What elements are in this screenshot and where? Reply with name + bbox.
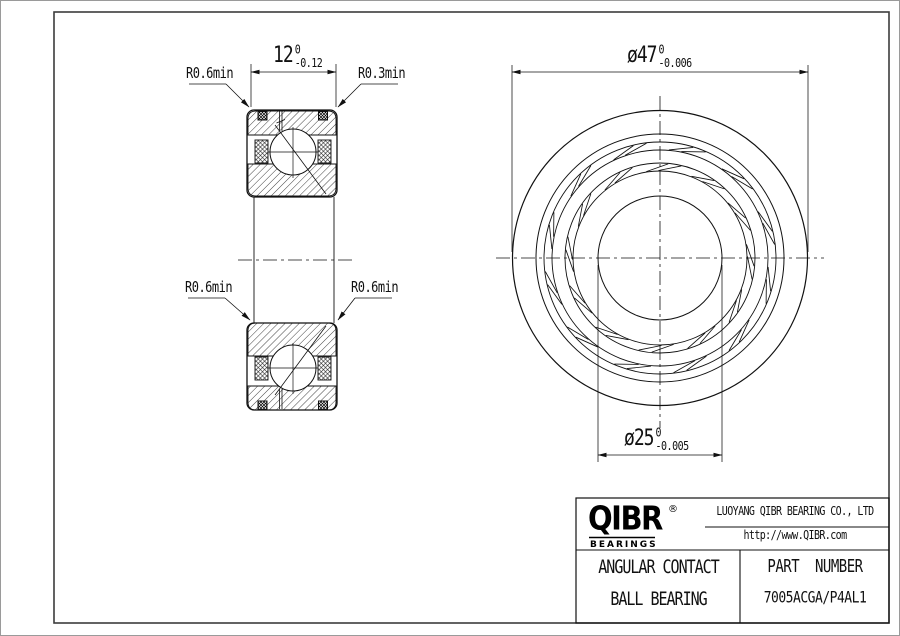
part-number-value: 7005ACGA/P4AL1 <box>741 590 889 606</box>
logo-bearings-text: BEARINGS <box>590 540 658 550</box>
radius-label-top-right: R0.3min <box>358 66 405 81</box>
od-value: ø47 <box>627 45 657 67</box>
company-name: LUOYANG QIBR BEARING CO., LTD <box>700 506 890 519</box>
product-name-line2: BALL BEARING <box>577 590 740 609</box>
radius-label-top-left: R0.6min <box>186 66 233 81</box>
bore-upper-tolerance: 0 <box>656 428 662 441</box>
width-value: 12 <box>273 45 293 67</box>
qibr-logo: QIBR <box>588 502 662 535</box>
od-dimension-text: ø47 0 -0.006 <box>627 45 692 71</box>
bore-lower-tolerance: -0.005 <box>656 441 689 454</box>
part-number-label: PART NUMBER <box>741 558 889 576</box>
od-upper-tolerance: 0 <box>659 45 665 58</box>
width-upper-tolerance: 0 <box>295 45 301 58</box>
company-website: http://www.QIBR.com <box>700 530 890 543</box>
bore-dimension-text: ø25 0 -0.005 <box>624 428 689 454</box>
width-lower-tolerance: -0.12 <box>295 58 323 71</box>
radius-label-bottom-right: R0.6min <box>351 280 398 295</box>
groove-right <box>319 401 328 410</box>
groove-left <box>258 112 267 121</box>
od-lower-tolerance: -0.006 <box>659 58 692 71</box>
groove-right <box>319 112 328 121</box>
cage-left <box>255 357 268 380</box>
section-bottom <box>247 323 337 410</box>
section-top <box>247 110 337 197</box>
bore-value: ø25 <box>624 428 654 450</box>
drawing-sheet: R0.6min R0.3min R0.6min R0.6min 12 0 -0.… <box>0 0 900 636</box>
radius-label-bottom-left: R0.6min <box>185 280 232 295</box>
cage-left <box>255 140 268 163</box>
registered-trademark-icon: ® <box>668 504 678 515</box>
groove-left <box>258 401 267 410</box>
cage-right <box>318 357 331 380</box>
width-dimension-text: 12 0 -0.12 <box>273 45 322 71</box>
product-name-line1: ANGULAR CONTACT <box>577 558 740 577</box>
cage-right <box>318 140 331 163</box>
